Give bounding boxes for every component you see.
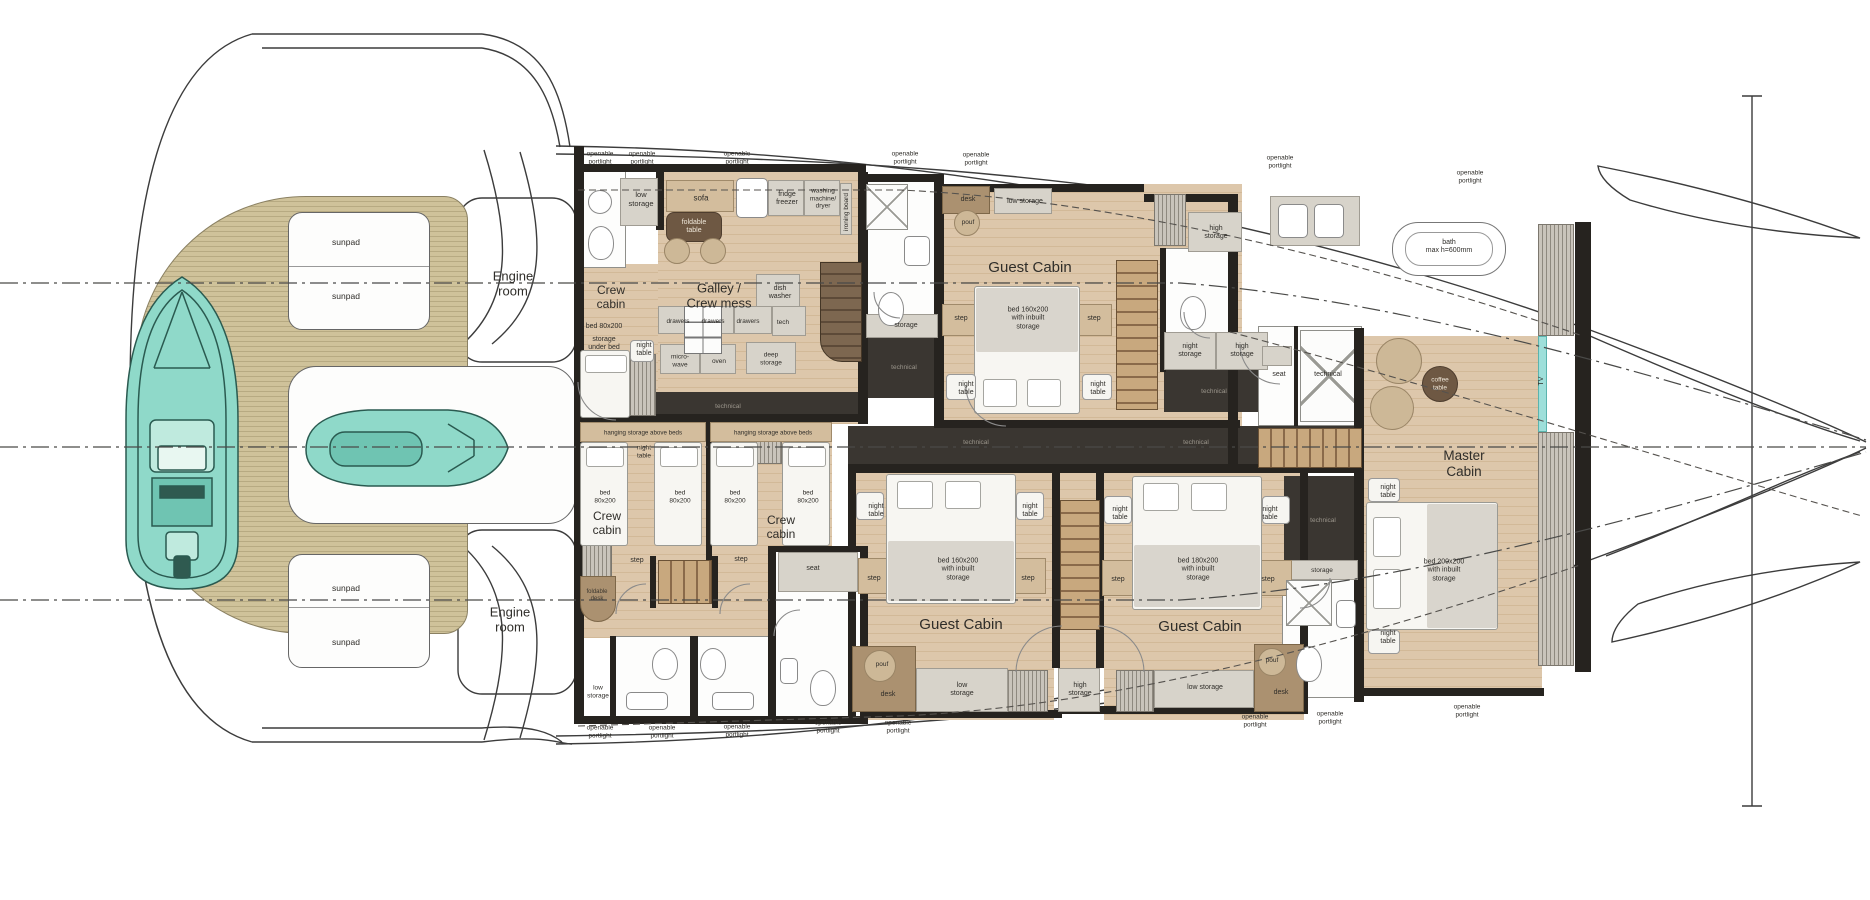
deep-storage-label: deep storage	[760, 351, 782, 366]
low-storage-guest2-label: low storage	[950, 682, 973, 699]
portlight-bottom-5-label: openable portlight	[1242, 713, 1269, 728]
bed-80-crew2b-label: bed 80x200	[797, 489, 818, 504]
portlight-top-2-label: openable portlight	[724, 150, 751, 165]
portlight-bottom-1-label: openable portlight	[649, 724, 676, 739]
technical-galley-label: technical	[715, 403, 741, 411]
crew-cabin-1-label: Crew cabin	[593, 509, 622, 537]
step-crew-2-label: step	[734, 556, 747, 564]
sunpad-1-label: sunpad	[332, 237, 360, 247]
drawers-3-label: drawers	[736, 318, 759, 326]
desk-guest3-label: desk	[1274, 689, 1289, 697]
bed-160-guest-fwd-label: bed 160x200 with inbuilt storage	[1008, 307, 1048, 332]
step-crew-1-label: step	[630, 557, 643, 565]
bed-80x200-fwd-label: bed 80x200	[586, 323, 623, 331]
coffee-table-label: coffee table	[1431, 376, 1449, 391]
hanging-storage-crew-1-label: hanging storage above beds	[604, 429, 682, 436]
bed-160-guest2-label: bed 160x200 with inbuilt storage	[938, 558, 978, 583]
seat-mid-label: seat	[1272, 371, 1285, 379]
sunpad-4-label: sunpad	[332, 637, 360, 647]
technical-bath-fwd-label: technical	[891, 364, 917, 372]
ironing-board-label: ironing board	[843, 193, 851, 231]
master-cabin-label: Master Cabin	[1443, 448, 1484, 480]
engine-room-top-label: Engine room	[493, 269, 533, 300]
dish-washer-label: dish washer	[769, 285, 792, 302]
pouf-guest2-label: pouf	[876, 661, 889, 669]
bed-80-crew1a-label: bed 80x200	[594, 489, 615, 504]
bed-80-crew2a-label: bed 80x200	[724, 489, 745, 504]
portlight-bottom-6-label: openable portlight	[1317, 710, 1344, 725]
label-layer: Engine roomEngine roomsunpadsunpadsunpad…	[0, 0, 1870, 900]
hanging-storage-crew-2-label: hanging storage above beds	[734, 429, 812, 436]
washing-machine-dryer-label: washing machine/ dryer	[810, 188, 836, 211]
night-table-guest3-left-label: night table	[1112, 506, 1127, 523]
night-table-guest3-right-label: night table	[1262, 506, 1277, 523]
drawers-1-label: drawers	[666, 318, 689, 326]
bath-max-height-label: bath max h=600mm	[1426, 239, 1473, 256]
step-guest3-right-label: step	[1261, 576, 1274, 584]
sofa-label: sofa	[693, 193, 708, 202]
portlight-bottom-2-label: openable portlight	[724, 723, 751, 738]
night-table-crew-label: night table	[637, 444, 651, 459]
portlight-top-3-label: openable portlight	[892, 150, 919, 165]
night-table-guest2-right-label: night table	[1022, 503, 1037, 520]
galley-crew-mess-label: Galley / Crew mess	[686, 281, 751, 312]
night-table-guest2-left-label: night table	[868, 503, 883, 520]
yacht-deck-plan: Engine roomEngine roomsunpadsunpadsunpad…	[0, 0, 1870, 900]
tech-label: tech	[777, 319, 789, 327]
portlight-bottom-0-label: openable portlight	[587, 724, 614, 739]
foldable-table-label: foldable table	[682, 219, 707, 236]
desk-guest-fwd-label: desk	[961, 196, 976, 204]
low-storage-guest3-label: low storage	[1187, 684, 1223, 692]
guest-cabin-3-label: Guest Cabin	[1158, 618, 1241, 636]
sunpad-2-label: sunpad	[332, 291, 360, 301]
storage-bath-fwd-label: storage	[894, 322, 917, 330]
night-table-fwd-label: night table	[636, 342, 651, 359]
bed-80-crew1b-label: bed 80x200	[669, 489, 690, 504]
technical-mid-dark-label: technical	[1201, 388, 1227, 396]
night-table-guest-fwd-right-label: night table	[1090, 381, 1105, 398]
portlight-top-4-label: openable portlight	[963, 151, 990, 166]
high-storage-guest-fwd-label: high storage	[1204, 225, 1227, 242]
portlight-bottom-7-label: openable portlight	[1454, 703, 1481, 718]
tv-label: TV	[1538, 377, 1546, 386]
low-storage-aft-label: low storage	[587, 684, 609, 699]
storage-under-bed-label: storage under bed	[588, 336, 620, 353]
crew-cabin-2-label: Crew cabin	[767, 513, 796, 541]
night-table-master-bottom-label: night table	[1380, 630, 1395, 647]
technical-master-label: technical	[1310, 517, 1336, 525]
technical-corridor-2-label: technical	[1183, 439, 1209, 447]
pouf-guest3-label: pouf	[1266, 657, 1279, 665]
portlight-top-5-label: openable portlight	[1267, 154, 1294, 169]
step-guest2-left-label: step	[867, 575, 880, 583]
microwave-label: micro- wave	[671, 353, 689, 368]
sunpad-3-label: sunpad	[332, 583, 360, 593]
portlight-bottom-4-label: openable portlight	[885, 719, 912, 734]
seat-aft-label: seat	[806, 565, 819, 573]
guest-cabin-fwd-label: Guest Cabin	[988, 259, 1071, 277]
technical-mid-white-label: technical	[1314, 371, 1342, 379]
night-table-guest-fwd-left-label: night table	[958, 381, 973, 398]
foldable-desk-label: foldable desk	[586, 589, 607, 603]
high-storage-mid-label: high storage	[1230, 343, 1253, 360]
oven-label: oven	[712, 358, 726, 366]
bed-200-master-label: bed 200x200 with inbuilt storage	[1424, 559, 1464, 584]
step-guest-fwd-right-label: step	[1087, 315, 1100, 323]
low-storage-fwd-label: low storage	[628, 191, 653, 209]
bed-180-guest3-label: bed 180x200 with inbuilt storage	[1178, 558, 1218, 583]
night-table-master-top-label: night table	[1380, 484, 1395, 501]
high-storage-aft-label: high storage	[1068, 682, 1091, 699]
portlight-top-1-label: openable portlight	[629, 150, 656, 165]
portlight-top-6-label: openable portlight	[1457, 169, 1484, 184]
crew-cabin-fwd-label: Crew cabin	[597, 283, 626, 311]
step-guest3-left-label: step	[1111, 576, 1124, 584]
step-guest2-right-label: step	[1021, 575, 1034, 583]
portlight-top-0-label: openable portlight	[587, 150, 614, 165]
pouf-guest-fwd-label: pouf	[962, 219, 975, 227]
desk-guest2-label: desk	[881, 691, 896, 699]
drawers-2-label: drawers	[701, 318, 724, 326]
night-storage-mid-label: night storage	[1178, 343, 1201, 360]
low-storage-guest-fwd-label: low storage	[1007, 198, 1043, 206]
technical-corridor-1-label: technical	[963, 439, 989, 447]
fridge-freezer-label: fridge freezer	[776, 191, 798, 208]
engine-room-bottom-label: Engine room	[490, 605, 530, 636]
portlight-bottom-3-label: openable portlight	[815, 719, 842, 734]
step-guest-fwd-left-label: step	[954, 315, 967, 323]
storage-master-bath-label: storage	[1311, 567, 1333, 575]
guest-cabin-2-label: Guest Cabin	[919, 616, 1002, 634]
